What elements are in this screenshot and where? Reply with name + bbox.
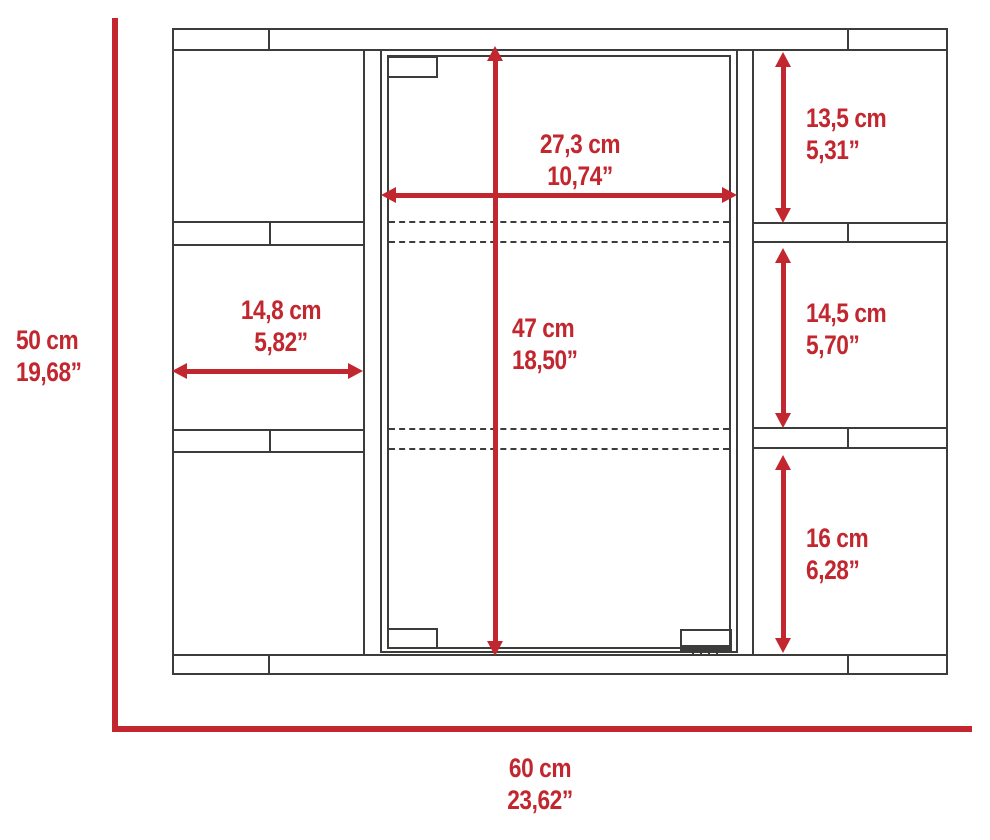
overall-height-cm: 50 cm: [16, 324, 82, 356]
door-height-arrow: [493, 61, 498, 641]
door-latch-bar: [680, 647, 732, 651]
door-hinge-top: [387, 56, 438, 78]
width-axis-line: [112, 726, 972, 732]
door-height-label: 47 cm 18,50”: [512, 312, 578, 376]
left-partition-line: [363, 50, 365, 655]
door-hinge-bottom: [387, 628, 438, 649]
right-shelf2-joint: [847, 427, 849, 449]
door-latch-foot-left: [692, 650, 702, 656]
overall-width-cm: 60 cm: [473, 752, 607, 784]
door-width-cm: 27,3 cm: [513, 128, 647, 160]
right-bottom-shelf-arrow: [781, 470, 786, 638]
door-latch-foot-right: [708, 650, 718, 656]
overall-height-inch: 19,68”: [16, 356, 82, 388]
right-middle-shelf-inch: 5,70”: [806, 329, 886, 361]
overall-width-inch: 23,62”: [473, 784, 607, 816]
door-width-inch: 10,74”: [513, 160, 647, 192]
overall-height-label: 50 cm 19,68”: [16, 324, 82, 388]
bottom-rail-line: [172, 654, 948, 656]
door-width-arrow: [396, 193, 722, 198]
right-middle-shelf-label: 14,5 cm 5,70”: [806, 297, 886, 361]
right-shelf1-joint: [847, 222, 849, 243]
cabinet-dimension-diagram: 50 cm 19,68” 60 cm 23,62” 27,3 cm 10,74”…: [0, 0, 990, 840]
top-rail-joint-left: [268, 28, 270, 51]
door-width-label: 27,3 cm 10,74”: [513, 128, 647, 192]
hidden-shelf2-top-line: [389, 428, 729, 430]
door-height-cm: 47 cm: [512, 312, 578, 344]
right-partition-line: [752, 50, 754, 655]
bottom-rail-joint-right: [847, 655, 849, 675]
right-bottom-shelf-inch: 6,28”: [806, 554, 868, 586]
right-bottom-shelf-label: 16 cm 6,28”: [806, 522, 868, 586]
hidden-shelf2-bottom-line: [389, 448, 729, 450]
bottom-rail-joint-left: [268, 655, 270, 675]
left-shelf-width-inch: 5,82”: [214, 326, 348, 358]
right-shelf1-bottom-line: [752, 241, 948, 243]
left-shelf1-joint: [269, 221, 271, 246]
right-top-shelf-label: 13,5 cm 5,31”: [806, 102, 886, 166]
height-axis-line: [112, 18, 118, 732]
right-top-shelf-cm: 13,5 cm: [806, 102, 886, 134]
hidden-shelf1-top-line: [389, 221, 729, 223]
left-shelf-width-arrow: [187, 369, 348, 374]
door-height-inch: 18,50”: [512, 344, 578, 376]
right-middle-shelf-cm: 14,5 cm: [806, 297, 886, 329]
left-shelf-width-cm: 14,8 cm: [214, 294, 348, 326]
right-top-shelf-arrow: [781, 67, 786, 208]
right-top-shelf-inch: 5,31”: [806, 134, 886, 166]
overall-width-label: 60 cm 23,62”: [473, 752, 607, 816]
left-shelf2-joint: [269, 429, 271, 453]
left-shelf-width-label: 14,8 cm 5,82”: [214, 294, 348, 358]
door-latch: [680, 629, 732, 647]
right-middle-shelf-arrow: [781, 263, 786, 413]
top-rail-joint-right: [847, 28, 849, 51]
hidden-shelf1-bottom-line: [389, 241, 729, 243]
right-bottom-shelf-cm: 16 cm: [806, 522, 868, 554]
right-shelf2-bottom-line: [752, 447, 948, 449]
